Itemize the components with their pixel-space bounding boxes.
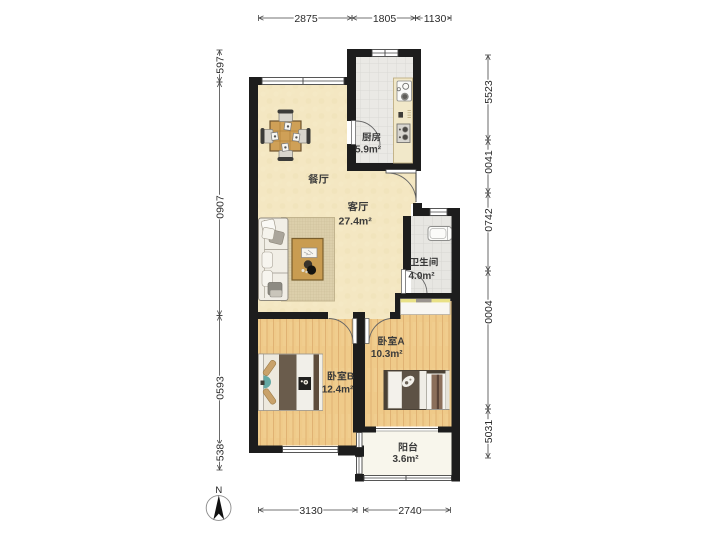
svg-text:B: B [347, 372, 354, 383]
svg-text:3130: 3130 [299, 505, 323, 517]
svg-text:5.9m²: 5.9m² [355, 145, 382, 156]
svg-text:597: 597 [214, 56, 226, 74]
svg-text:5031: 5031 [483, 420, 495, 444]
svg-text:0907: 0907 [214, 195, 226, 219]
svg-text:5523: 5523 [483, 80, 495, 104]
svg-text:0593: 0593 [214, 376, 226, 400]
svg-text:0742: 0742 [483, 208, 495, 232]
svg-text:0004: 0004 [483, 300, 495, 324]
svg-text:A: A [397, 337, 404, 348]
svg-text:4.0m²: 4.0m² [409, 271, 436, 282]
svg-text:1805: 1805 [373, 13, 397, 25]
svg-text:3.6m²: 3.6m² [393, 454, 420, 465]
svg-text:12.4m²: 12.4m² [322, 385, 354, 396]
svg-text:27.4m²: 27.4m² [339, 215, 373, 227]
svg-text:538: 538 [214, 444, 226, 462]
svg-text:2740: 2740 [398, 505, 422, 517]
svg-text:0041: 0041 [483, 150, 495, 174]
svg-text:2875: 2875 [294, 13, 318, 25]
svg-text:1130: 1130 [424, 13, 447, 25]
svg-text:N: N [215, 485, 222, 496]
svg-text:10.3m²: 10.3m² [371, 349, 403, 360]
